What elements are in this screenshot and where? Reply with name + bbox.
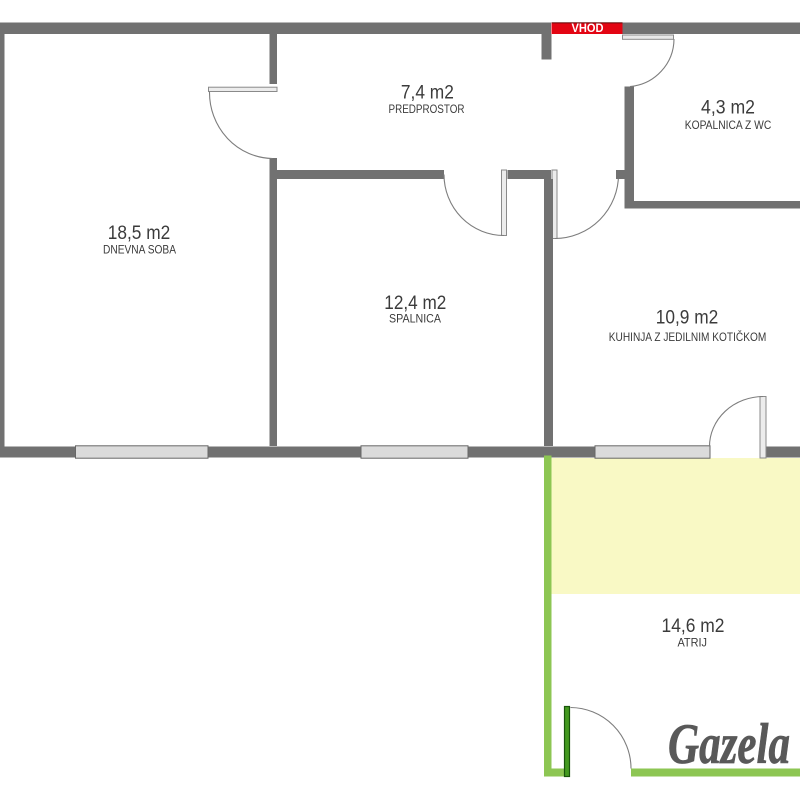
svg-text:Gazela: Gazela	[668, 713, 790, 776]
svg-text:KUHINJA Z JEDILNIM KOTIČKOM: KUHINJA Z JEDILNIM KOTIČKOM	[609, 329, 767, 344]
svg-text:SPALNICA: SPALNICA	[389, 311, 441, 325]
svg-text:ATRIJ: ATRIJ	[677, 635, 707, 649]
svg-text:10,9 m2: 10,9 m2	[656, 307, 719, 329]
svg-text:18,5 m2: 18,5 m2	[108, 222, 171, 244]
svg-text:DNEVNA SOBA: DNEVNA SOBA	[103, 242, 176, 256]
svg-text:KOPALNICA Z WC: KOPALNICA Z WC	[685, 118, 772, 132]
svg-text:7,4 m2: 7,4 m2	[401, 82, 454, 104]
svg-text:4,3 m2: 4,3 m2	[701, 97, 755, 119]
svg-text:PREDPROSTOR: PREDPROSTOR	[389, 102, 465, 116]
svg-text:14,6 m2: 14,6 m2	[662, 615, 725, 637]
svg-text:VHOD: VHOD	[572, 23, 604, 35]
